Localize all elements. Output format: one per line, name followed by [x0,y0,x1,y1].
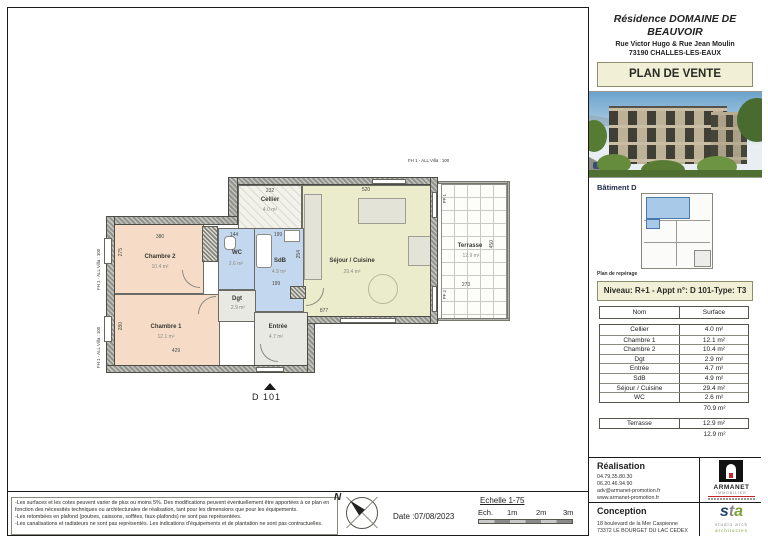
table-row: Séjour / Cuisine29.4 m² [600,383,748,393]
wall-wing-top [106,216,238,225]
keyplan-line-v1 [676,220,677,266]
scale-mark-3m: 3m [563,508,573,517]
disclaimer-box: -Les surfaces et les cotes peuvent varie… [11,497,338,535]
armanet-red-rule [708,496,755,497]
armanet-logo-icon [719,460,743,482]
conception-label: Conception [597,506,647,516]
armanet-logo-cell: ARMANET IMMOBILIER [699,457,762,502]
cell-surface: 2.9 m² [680,355,748,364]
table-row: Terrasse 12.9 m² [600,419,748,429]
terrasse-rail-bottom [438,318,510,321]
col-header-surface: Surface [680,307,748,318]
kitchen-counter [304,194,322,280]
toilet [224,236,236,250]
footer-divider [7,491,589,492]
room-label: Terrasse [458,243,483,249]
closet-placard [290,286,306,299]
photo-building [609,106,727,164]
kitchen-island [408,236,432,266]
address-line2: 73190 CHALLES-LES-EAUX [589,50,761,57]
table-row: Chambre 210.4 m² [600,344,748,354]
room-area: 12.1 m² [158,334,175,340]
building-photo [589,91,762,178]
table-row: Chambre 112.1 m² [600,335,748,345]
north-label: N [334,492,341,503]
room-area: 2.9 m² [231,305,245,311]
photo-lawn [589,170,762,178]
cell-surface: 4.0 m² [680,325,748,335]
dim-label: 877 [320,308,328,314]
date-label: Date :07/08/2023 [393,512,454,521]
cell-nom: Dgt [600,355,680,364]
scale-mark-2m: 2m [536,508,546,517]
sta-logo-sub1: studio arch [700,522,763,527]
dim-label: 254 [296,250,302,258]
sta-logo-text: sta [700,503,763,520]
dim-label: 273 [462,282,470,288]
disclaimer-line1: -Les surfaces et les cotes peuvent varie… [15,500,334,514]
room-area: 29.4 m² [344,269,361,275]
window-pf1 [432,192,437,218]
room-label: Dgt [232,296,242,302]
dim-label: 429 [172,348,180,354]
room-area: 4.0 m² [263,207,277,213]
room-terrasse [441,184,507,319]
closet-chambre2 [202,226,218,262]
cell-surface: 12.1 m² [680,336,748,345]
room-area: 4.9 m² [272,269,286,275]
keyplan-line-h2 [644,242,710,243]
room-area: 10.4 m² [152,264,169,270]
table-body: Cellier4.0 m² Chambre 112.1 m² Chambre 2… [599,324,749,403]
table-header: Nom Surface [599,306,749,319]
dim-label: 144 [230,232,238,238]
window-sejour-bottom [340,318,396,323]
total-surface: 70.9 m² [680,403,749,414]
room-label: Séjour / Cuisine [329,258,374,264]
room-label: Entrée [269,324,288,330]
room-area: 4.7 m² [269,334,283,340]
sta-logo-cell: sta studio arch architectes [699,502,762,536]
residence-title: Résidence DOMAINE DE BEAUVOIR [593,13,757,39]
floor-plan: Cellier 4.0 m² Séjour / Cuisine 29.4 m² … [0,0,588,492]
keyplan-stub [694,250,711,267]
terrasse-rail-top [438,181,510,184]
door-entrance [256,367,284,372]
keyplan-highlighted-tab [646,219,660,229]
keyplan [641,193,713,269]
window-chambre2 [104,238,112,264]
terrasse-row-box: Terrasse 12.9 m² [599,418,749,430]
dim-label: 280 [118,322,124,330]
pf2-label: PF 2 [442,290,447,299]
cell-nom: Séjour / Cuisine [600,384,680,393]
address-line1: Rue Victor Hugo & Rue Jean Moulin [589,41,761,48]
dim-label: 232 [266,188,274,194]
cell-nom: Chambre 2 [600,345,680,354]
conception-address2: 73372 LE BOURGET DU LAC CEDEX [597,528,688,535]
niveau-banner: Niveau: R+1 - Appt n°: D 101-Type: T3 [597,281,753,301]
title-block: Résidence DOMAINE DE BEAUVOIR Rue Victor… [588,7,761,536]
window-sejour-top [372,179,406,184]
window-annotation: FH 1 - ALL Villa : 100 [96,304,101,368]
wall-top [230,177,438,185]
window-annotation: FH 1 - ALL Villa : 100 [96,226,101,290]
armanet-logo-subtext: IMMOBILIER [700,491,763,495]
window-annotation: FH 1 - ALL Villa : 100 [408,158,449,163]
sta-logo-s: s [720,503,729,520]
keyplan-highlighted-unit [646,197,690,219]
terrasse-total-row: 12.9 m² [599,429,749,440]
dim-label: 199 [272,281,280,287]
washing-machine [284,230,300,242]
cell-surface: 4.9 m² [680,374,748,383]
room-area: 2.6 m² [229,261,243,267]
window-pf2 [432,286,437,312]
cell-nom: SdB [600,374,680,383]
realisation-label: Réalisation [597,461,645,471]
sta-logo-sub2: architectes [700,528,763,533]
window-chambre1 [104,316,112,342]
scale-prefix: Ech. [478,508,493,517]
dim-label: 450 [489,240,495,248]
room-label: WC [232,250,242,256]
room-label: Chambre 1 [150,324,181,330]
plan-reperage-label: Plan de repérage [597,271,637,277]
sta-logo-a: a [734,503,743,520]
table-row: WC2.6 m² [600,392,748,402]
plan-de-vente-sheet: Cellier 4.0 m² Séjour / Cuisine 29.4 m² … [0,0,768,543]
batiment-label: Bâtiment D [597,183,637,192]
terrasse-total-surface: 12.9 m² [680,429,749,440]
apartment-marker-icon [264,383,276,390]
cell-nom: Cellier [600,325,680,335]
surface-table: Nom Surface Cellier4.0 m² Chambre 112.1 … [599,306,749,440]
scale-mark-1m: 1m [507,508,517,517]
dim-label: 520 [362,187,370,193]
cell-nom: Entrée [600,364,680,373]
table-row: Entrée4.7 m² [600,363,748,373]
disclaimer-line2: -Les retombées en plafond (poutres, cais… [15,514,334,521]
table-row: SdB4.9 m² [600,373,748,383]
table-row: Dgt2.9 m² [600,354,748,364]
cell-surface: 12.9 m² [680,419,748,429]
room-area: 12.9 m² [463,253,480,259]
bathtub [256,234,272,268]
table-total-row: 70.9 m² [599,403,749,414]
room-label: Cellier [261,197,279,203]
cell-surface: 4.7 m² [680,364,748,373]
cell-nom: Terrasse [600,419,680,429]
room-label: SdB [274,258,286,264]
dining-table [358,198,406,224]
wall-entree-right [307,316,315,373]
plan-de-vente-banner: PLAN DE VENTE [597,62,753,87]
dim-label: 199 [274,232,282,238]
cell-surface: 10.4 m² [680,345,748,354]
terrasse-rail-right [507,181,510,321]
disclaimer-line3: -Les canalisations et radiateurs ne sont… [15,521,334,528]
cell-surface: 29.4 m² [680,384,748,393]
cell-nom: Chambre 1 [600,336,680,345]
scale-bar [478,519,573,524]
dim-label: 380 [156,234,164,240]
scale-title: Echelle 1-75 [480,496,524,505]
pf1-label: PF 1 [442,194,447,203]
armanet-logo-text: ARMANET [700,484,763,491]
round-rug [368,274,398,304]
dim-label: 275 [118,248,124,256]
apartment-label: D 101 [252,392,281,402]
room-label: Chambre 2 [144,254,175,260]
cell-surface: 2.6 m² [680,393,748,402]
table-row: Cellier4.0 m² [600,325,748,335]
armanet-tagline-bar [708,498,755,500]
cell-nom: WC [600,393,680,402]
col-header-nom: Nom [600,307,680,318]
armanet-logo-red-square [729,473,733,478]
